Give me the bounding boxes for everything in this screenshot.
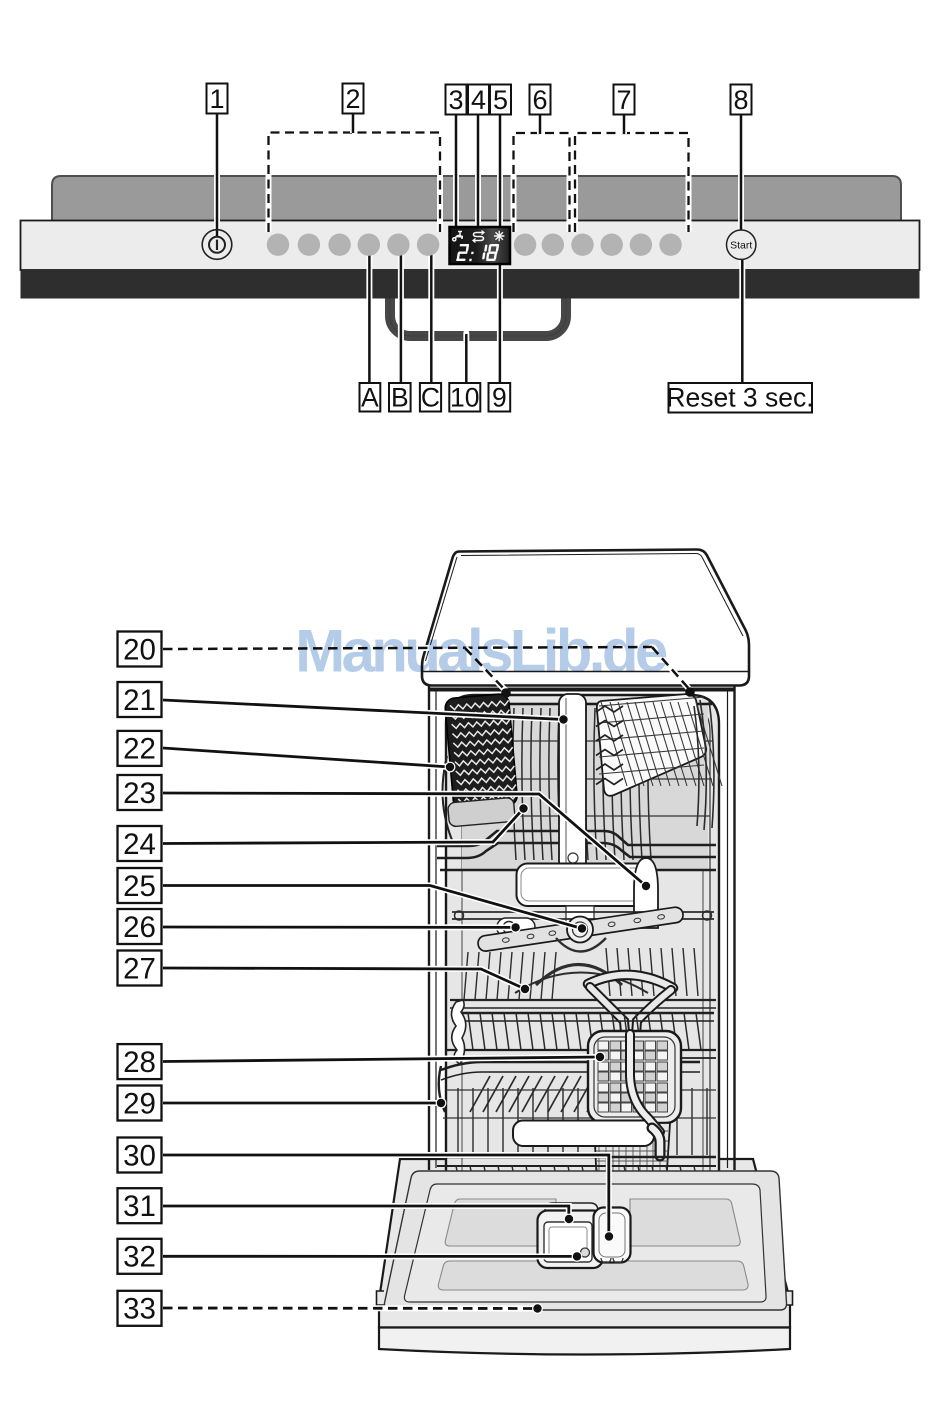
svg-text:7: 7: [616, 85, 631, 115]
svg-text:A: A: [361, 383, 379, 413]
svg-text:Start: Start: [730, 240, 752, 252]
svg-text:3: 3: [448, 85, 463, 115]
svg-text:23: 23: [123, 777, 156, 810]
svg-text:27: 27: [123, 952, 156, 985]
svg-text:22: 22: [123, 733, 156, 766]
svg-text:25: 25: [123, 870, 156, 903]
svg-text:5: 5: [493, 85, 508, 115]
svg-text:21: 21: [123, 684, 156, 717]
svg-text:30: 30: [123, 1139, 156, 1172]
svg-text:20: 20: [123, 633, 156, 666]
svg-text:C: C: [421, 383, 440, 413]
svg-text:28: 28: [123, 1046, 156, 1079]
svg-text:26: 26: [123, 911, 156, 944]
svg-text:29: 29: [123, 1087, 156, 1120]
svg-text:6: 6: [532, 85, 547, 115]
svg-text:31: 31: [123, 1190, 156, 1223]
svg-text:9: 9: [492, 383, 507, 413]
svg-text:8: 8: [733, 85, 748, 115]
svg-text:4: 4: [471, 85, 486, 115]
svg-text:1: 1: [209, 84, 224, 114]
svg-text:2: 2: [345, 84, 360, 114]
svg-text:10: 10: [450, 383, 479, 413]
svg-text:32: 32: [123, 1241, 156, 1274]
svg-text:Reset 3 sec.: Reset 3 sec.: [666, 383, 813, 413]
svg-text:B: B: [391, 383, 409, 413]
svg-text:24: 24: [123, 828, 156, 861]
svg-text:33: 33: [123, 1293, 156, 1326]
svg-text:ManualsLib.de: ManualsLib.de: [295, 618, 668, 685]
